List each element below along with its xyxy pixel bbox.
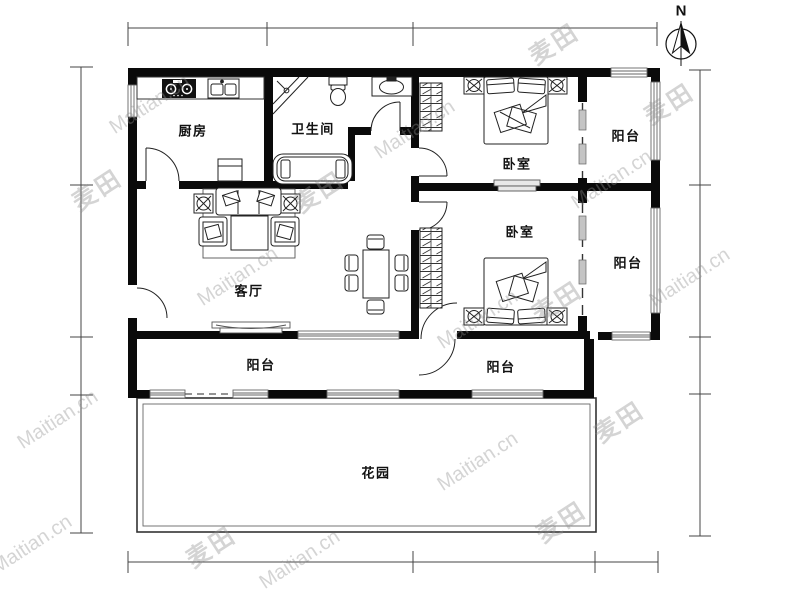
- label-bedroom-north: 卧室: [502, 158, 531, 171]
- label-kitchen: 厨房: [178, 125, 207, 138]
- sliding-door: [579, 103, 586, 178]
- nightstand-lamp-icon: [464, 308, 484, 325]
- wardrobe-icon: [420, 83, 442, 131]
- wardrobe-icon: [420, 228, 442, 308]
- toilet-icon: [329, 77, 347, 106]
- side-table-lamp-icon: [194, 194, 213, 213]
- coffee-table-icon: [231, 216, 268, 250]
- window: [651, 82, 660, 160]
- window: [472, 390, 543, 398]
- sofa-icon: [216, 188, 281, 215]
- fridge-icon: [218, 159, 242, 181]
- kitchen-sink-icon: [208, 79, 239, 98]
- label-balcony-northeast: 阳台: [611, 130, 640, 143]
- window: [150, 390, 185, 398]
- label-balcony-south-right: 阳台: [486, 361, 515, 374]
- label-garden: 花园: [361, 467, 390, 480]
- floorplan: 厨房 卫生间 客厅 卧室 卧室 阳台 阳台 阳台 阳台 花园 N Maitian…: [0, 0, 799, 600]
- label-living-room: 客厅: [234, 285, 263, 298]
- window: [612, 332, 650, 340]
- bathroom-door: [371, 102, 400, 131]
- kitchen-door: [146, 148, 179, 181]
- window: [128, 85, 137, 117]
- window: [611, 68, 647, 77]
- stove-icon: [162, 79, 196, 98]
- bedroom-north-door: [419, 148, 447, 176]
- bed-icon: [484, 77, 548, 144]
- living-west-door: [137, 288, 167, 318]
- washbasin-icon: [372, 77, 412, 96]
- balcony-double-door: [419, 303, 457, 375]
- armchair-icon: [271, 217, 299, 246]
- window: [233, 390, 268, 398]
- nightstand-lamp-icon: [547, 77, 567, 94]
- label-bedroom-south: 卧室: [505, 226, 534, 239]
- label-bathroom: 卫生间: [291, 123, 335, 136]
- side-table-lamp-icon: [281, 194, 300, 213]
- bedroom-south-door: [419, 202, 447, 230]
- floorplan-drawing: [0, 0, 799, 600]
- nightstand-lamp-icon: [464, 77, 484, 94]
- bed-icon: [484, 258, 548, 325]
- nightstand-lamp-icon: [547, 308, 567, 325]
- bathtub-icon: [273, 154, 352, 184]
- compass-icon: [666, 21, 696, 66]
- kitchen-counter: [137, 77, 264, 99]
- window: [651, 208, 660, 313]
- label-balcony-east: 阳台: [613, 257, 642, 270]
- sliding-door: [579, 203, 586, 316]
- window-sill: [212, 322, 290, 333]
- window: [327, 390, 399, 398]
- armchair-icon: [199, 217, 227, 246]
- window: [298, 331, 399, 339]
- dining-set-icon: [345, 235, 408, 314]
- compass-north-label: N: [676, 4, 687, 19]
- dimension-lines: [70, 22, 711, 573]
- wall-shelf: [494, 180, 540, 191]
- label-balcony-south-left: 阳台: [246, 359, 275, 372]
- shower-icon: [273, 77, 308, 114]
